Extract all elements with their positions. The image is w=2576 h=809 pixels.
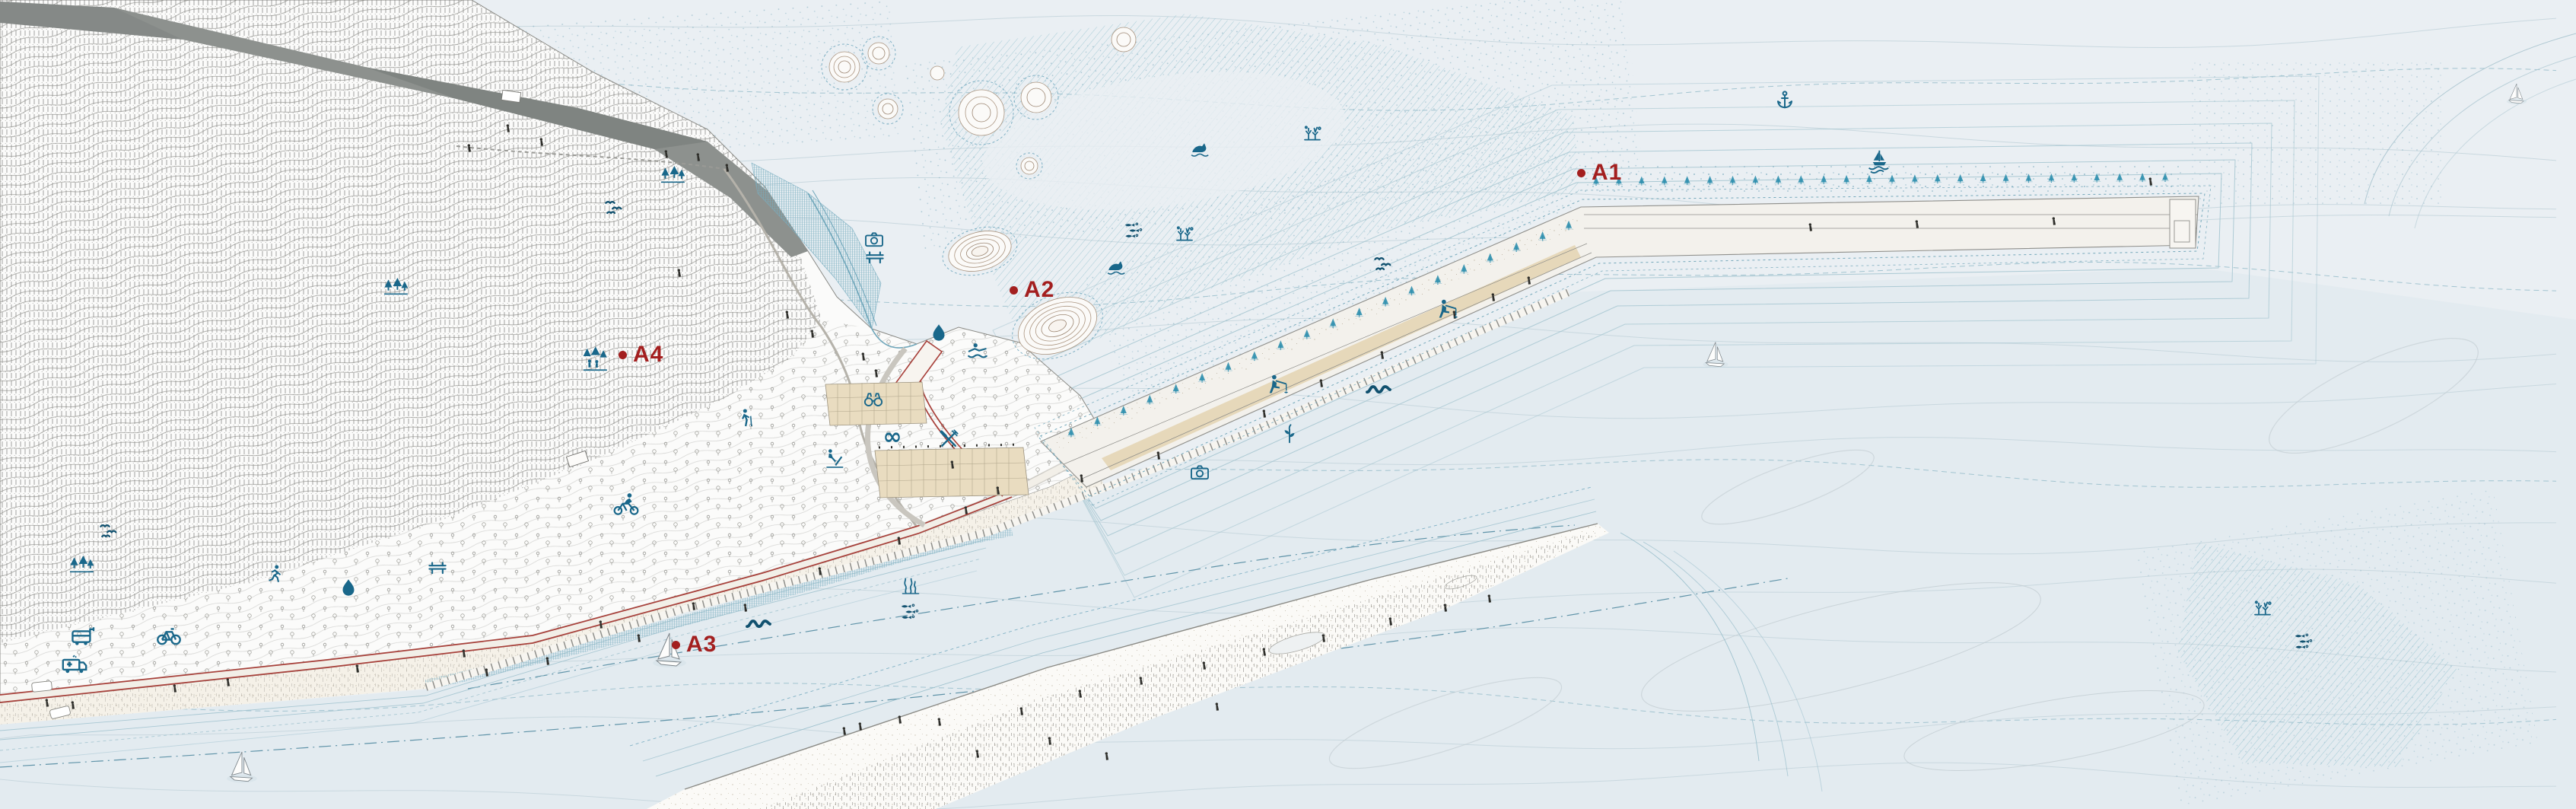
- coral-icon: [2251, 595, 2274, 618]
- playground-icon: [823, 447, 846, 470]
- marker-A4: A4: [619, 342, 663, 368]
- site-plan-canvas: ∞A1A2A3A4: [0, 0, 2576, 809]
- eel-icon: [744, 610, 773, 639]
- bicycle-icon: [154, 621, 183, 650]
- marker-label: A3: [686, 632, 717, 658]
- marker-A2: A2: [1010, 277, 1054, 303]
- marker-dot: [1577, 169, 1585, 177]
- ridge-building: [501, 90, 521, 102]
- coral-icon: [1173, 221, 1196, 244]
- fish-icon: [898, 600, 921, 623]
- svg-text:∞: ∞: [883, 424, 902, 451]
- marker-label: A4: [633, 342, 663, 368]
- marker-A3: A3: [672, 632, 717, 658]
- ebus-icon: [69, 621, 98, 650]
- birds-icon: [603, 196, 625, 219]
- anchor-icon: [1773, 89, 1796, 112]
- marker-label: A2: [1024, 277, 1054, 303]
- fish-icon: [1122, 219, 1145, 242]
- marker-label: A1: [1592, 160, 1622, 186]
- marker-dot: [672, 641, 680, 649]
- camera-icon: [1188, 461, 1211, 484]
- birds-icon: [97, 520, 120, 543]
- seal-icon: [1189, 137, 1212, 160]
- fisher-icon: [1265, 371, 1294, 400]
- forest-icon: [67, 553, 96, 581]
- waterdrop-icon: [927, 322, 950, 345]
- fish-icon: [2292, 630, 2315, 653]
- harbor-icon: [1865, 147, 1894, 176]
- marker-dot: [619, 351, 627, 359]
- ambulance-icon: [60, 649, 89, 678]
- restaurant-icon: [937, 428, 960, 451]
- hiker-icon: [734, 407, 757, 430]
- coral-icon: [1301, 120, 1324, 143]
- bench-icon: [426, 556, 449, 578]
- runner-icon: [262, 563, 285, 586]
- seal-icon: [1105, 255, 1128, 278]
- camera-icon: [863, 228, 886, 251]
- eel-icon: [1364, 375, 1393, 404]
- binoculars-icon: [862, 388, 885, 411]
- forest-icon: [658, 163, 687, 192]
- infinity-icon: ∞: [878, 422, 907, 451]
- forest-people-icon: [580, 345, 609, 374]
- birds-icon: [1372, 253, 1395, 276]
- base-map: [0, 0, 2576, 809]
- marker-dot: [1010, 286, 1018, 295]
- marker-A1: A1: [1577, 160, 1622, 186]
- kelp-icon: [899, 573, 922, 596]
- plant-icon: [1278, 422, 1301, 445]
- fisher-icon: [1435, 296, 1464, 325]
- pier-head: [2170, 199, 2196, 248]
- waterdrop-icon: [337, 577, 360, 600]
- swimmer-icon: [966, 339, 989, 362]
- forest-icon: [381, 275, 410, 304]
- cyclist-icon: [612, 490, 641, 519]
